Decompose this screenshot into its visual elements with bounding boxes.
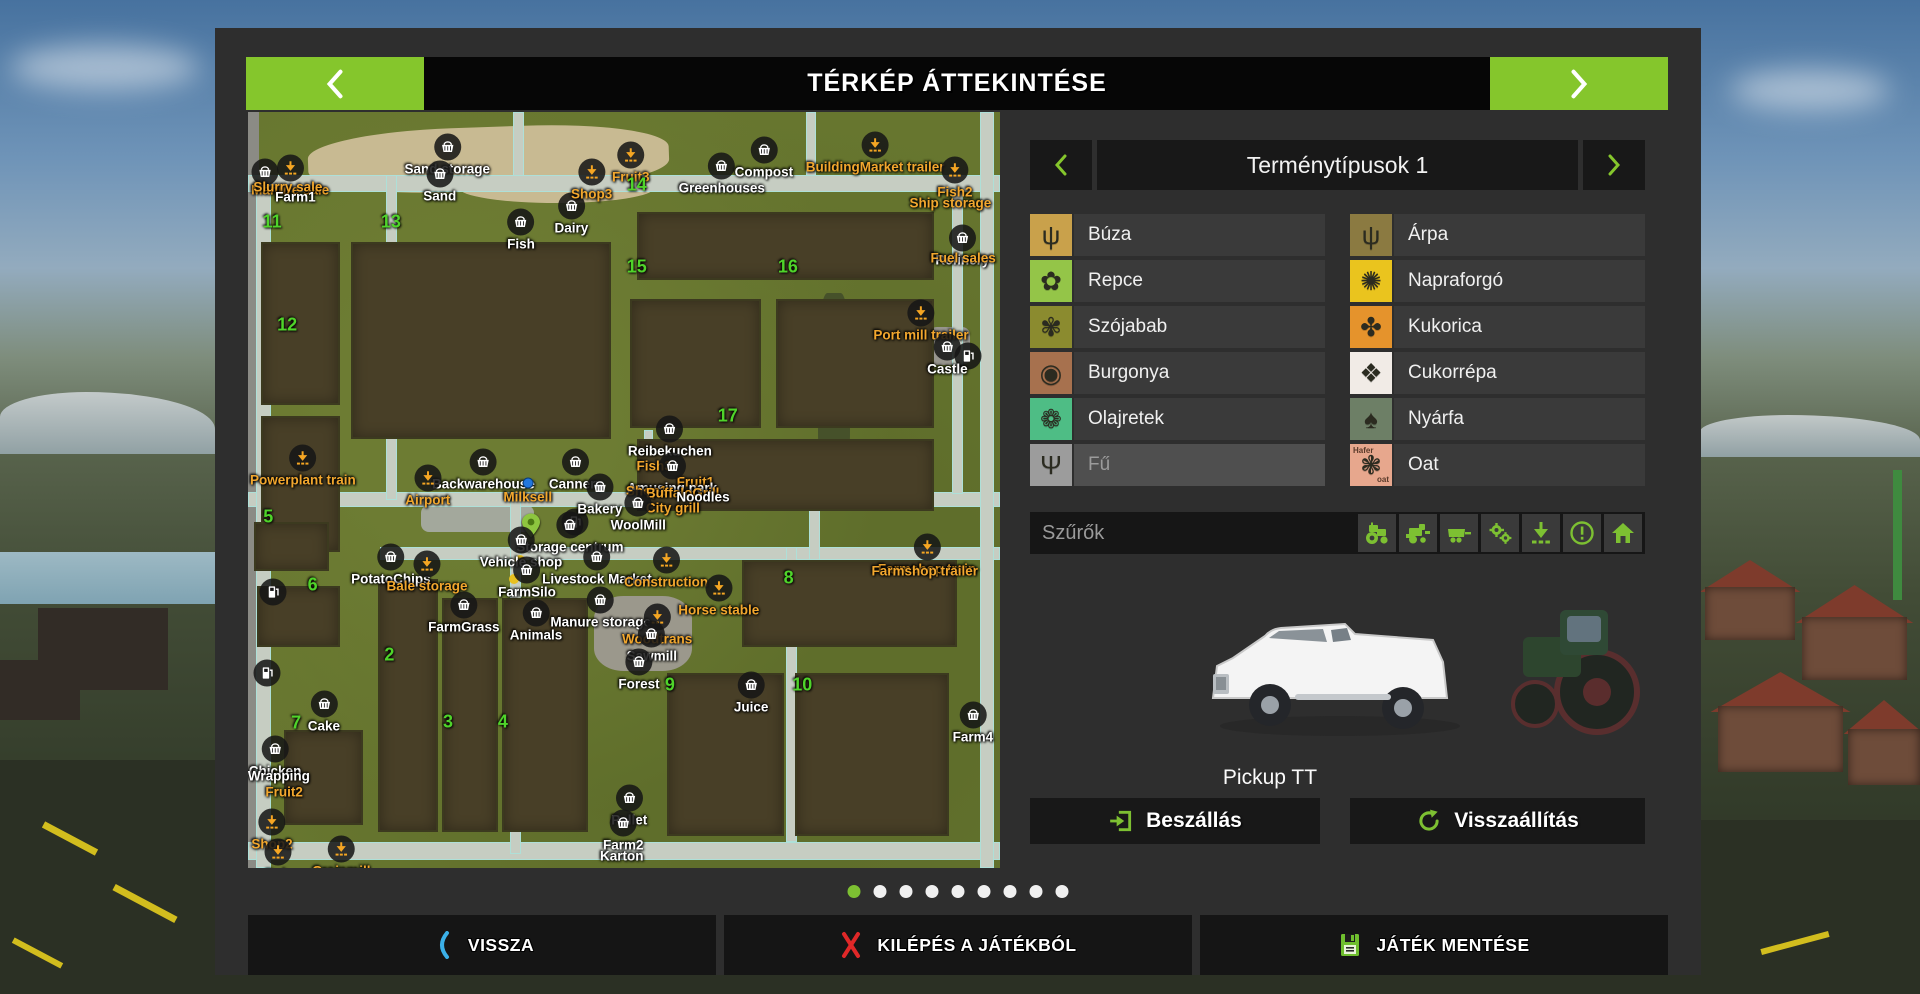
map-label-buildingmarket-trailer: BuildingMarket trailer <box>806 131 945 174</box>
trailer-filter-icon[interactable] <box>1440 514 1478 552</box>
chevron-right-icon <box>1607 154 1621 176</box>
basket-marker-icon <box>556 512 583 539</box>
map-road <box>952 188 963 494</box>
crops-next-button[interactable] <box>1583 140 1645 190</box>
map-label-text: Backwarehouse <box>432 477 535 492</box>
crop-row-búza[interactable]: ψBúza <box>1030 214 1325 256</box>
crop-row-szójabab[interactable]: ✾Szójabab <box>1030 306 1325 348</box>
map-road <box>806 112 817 176</box>
crop-label: Árpa <box>1408 224 1448 246</box>
save-floppy-icon <box>1338 931 1362 959</box>
basket-marker-icon <box>470 449 497 476</box>
download-marker-icon <box>862 131 889 158</box>
reset-vehicle-button[interactable]: Visszaállítás <box>1350 798 1645 844</box>
barley-icon: ψ <box>1350 214 1392 256</box>
warning-filter-icon[interactable] <box>1563 514 1601 552</box>
reset-icon <box>1416 808 1442 834</box>
map-road <box>513 112 524 176</box>
page-dots <box>848 885 1069 898</box>
map-field <box>632 301 760 426</box>
save-game-button[interactable]: JÁTÉK MENTÉSE <box>1200 915 1668 975</box>
crop-label: Búza <box>1088 224 1131 246</box>
crops-panel: Terménytípusok 1 ψBúza✿Repce✾Szójabab◉Bu… <box>1030 140 1645 880</box>
back-button[interactable]: VISSZA <box>248 915 716 975</box>
page-dot-3[interactable] <box>900 885 913 898</box>
back-chevron-icon <box>430 931 454 959</box>
page-dot-9[interactable] <box>1056 885 1069 898</box>
crop-row-kukorica[interactable]: ✤Kukorica <box>1350 306 1645 348</box>
crop-label-bar: Oat <box>1394 444 1645 486</box>
vehicle-name: Pickup TT <box>1030 766 1510 790</box>
enter-vehicle-button[interactable]: Beszállás <box>1030 798 1320 844</box>
house <box>1802 585 1907 680</box>
crop-label: Szójabab <box>1088 316 1167 338</box>
crop-label: Oat <box>1408 454 1439 476</box>
crop-label: Kukorica <box>1408 316 1482 338</box>
map-label-compost: Compost <box>735 137 794 180</box>
back-label: VISSZA <box>468 935 534 956</box>
map-road <box>980 112 994 868</box>
crop-label: Nyárfa <box>1408 408 1464 430</box>
house <box>1718 672 1843 772</box>
map-forest-area <box>594 596 692 672</box>
dot-blue-marker-icon <box>522 477 533 488</box>
map-label-farmsilo: FarmSilo <box>498 556 556 599</box>
map-field <box>669 675 782 834</box>
mountains <box>0 392 215 454</box>
filters-label: Szűrők <box>1030 522 1358 545</box>
page-title: TÉRKÉP ÁTTEKINTÉSE <box>807 69 1107 98</box>
unloading-filter-icon[interactable] <box>1522 514 1560 552</box>
chevron-left-icon <box>324 69 346 99</box>
map-label-text: Dairy <box>554 221 588 236</box>
harvester-filter-icon[interactable] <box>1399 514 1437 552</box>
map-field <box>380 581 436 830</box>
map-label-cake: Cake <box>308 691 340 734</box>
minimap[interactable]: Manure saleSlurry saleFarm1Sand storageS… <box>248 112 1000 868</box>
map-label-text: Forest <box>618 676 659 691</box>
crop-row-olajretek[interactable]: ❁Olajretek <box>1030 398 1325 440</box>
page-dot-8[interactable] <box>1030 885 1043 898</box>
map-label-text: Grainmill <box>312 864 371 868</box>
prev-screen-button[interactable] <box>246 57 424 110</box>
rapeseed-icon: ✿ <box>1030 260 1072 302</box>
cloud <box>1730 70 1890 110</box>
crop-label-bar: Nyárfa <box>1394 398 1645 440</box>
download-marker-icon <box>414 465 441 492</box>
crops-panel-header: Terménytípusok 1 <box>1030 140 1645 190</box>
crop-label: Olajretek <box>1088 408 1164 430</box>
oilseed-radish-icon: ❁ <box>1030 398 1072 440</box>
gears-filter-icon[interactable] <box>1481 514 1519 552</box>
map-road <box>380 547 1000 560</box>
soybean-icon: ✾ <box>1030 306 1072 348</box>
crop-row-burgonya[interactable]: ◉Burgonya <box>1030 352 1325 394</box>
crop-label-bar: Olajretek <box>1074 398 1325 440</box>
enter-icon <box>1108 808 1134 834</box>
road <box>215 975 1701 994</box>
reset-vehicle-label: Visszaállítás <box>1454 809 1579 833</box>
sugar-beet-icon: ❖ <box>1350 352 1392 394</box>
page-dot-7[interactable] <box>1004 885 1017 898</box>
map-field <box>353 244 609 437</box>
map-field <box>744 562 955 645</box>
crop-label-bar: Repce <box>1074 260 1325 302</box>
page-dot-2[interactable] <box>874 885 887 898</box>
tractor-image <box>1505 592 1640 742</box>
basket-marker-icon <box>616 785 643 812</box>
map-label-text: Construction <box>624 574 708 589</box>
field-number-7: 7 <box>291 712 301 733</box>
vehicle-preview: Pickup TT <box>1030 570 1645 798</box>
crop-label-bar: Burgonya <box>1074 352 1325 394</box>
map-field <box>639 214 932 278</box>
map-label-pallet: Pallet <box>611 785 647 828</box>
cloud <box>10 45 200 90</box>
basket-marker-icon <box>750 137 777 164</box>
crop-label: Repce <box>1088 270 1143 292</box>
fuel-marker-icon <box>562 508 589 535</box>
crop-label: Burgonya <box>1088 362 1169 384</box>
map-field <box>797 675 947 834</box>
crops-panel-title: Terménytípusok 1 <box>1097 140 1578 190</box>
basket-marker-icon <box>562 449 589 476</box>
map-overview-dialog: TÉRKÉP ÁTTEKINTÉSE Manure saleSlurry sal… <box>215 28 1701 975</box>
map-field <box>444 600 497 831</box>
crane <box>1893 470 1902 600</box>
crop-label: Fű <box>1088 454 1110 476</box>
grass-icon: Ψ <box>1030 444 1072 486</box>
quit-game-button[interactable]: KILÉPÉS A JÁTÉKBÓL <box>724 915 1192 975</box>
oat-icon: ❃Haferoat <box>1350 444 1392 486</box>
action-buttons: Beszállás Visszaállítás <box>1030 798 1645 844</box>
crop-label-bar: Árpa <box>1394 214 1645 256</box>
crop-row-oat[interactable]: ❃HaferoatOat <box>1350 444 1645 486</box>
chevron-right-icon <box>1568 69 1590 99</box>
map-field <box>778 301 932 426</box>
map-field <box>256 524 327 569</box>
lake <box>0 552 215 604</box>
crop-row-napraforgó[interactable]: ✺Napraforgó <box>1350 260 1645 302</box>
road <box>1700 820 1920 994</box>
crop-label: Napraforgó <box>1408 270 1503 292</box>
screenshot-stage: TÉRKÉP ÁTTEKINTÉSE Manure saleSlurry sal… <box>0 0 1920 994</box>
basket-marker-icon <box>610 809 637 836</box>
basket-marker-icon <box>310 691 337 718</box>
crop-label: Cukorrépa <box>1408 362 1497 384</box>
corn-icon: ✤ <box>1350 306 1392 348</box>
crop-row-nyárfa[interactable]: ♠Nyárfa <box>1350 398 1645 440</box>
map-label-cannery: Cannery <box>549 449 603 492</box>
map-field <box>286 732 361 823</box>
map-field <box>259 588 338 645</box>
map-label-text: Pallet <box>611 813 647 828</box>
map-castle-area <box>929 327 970 365</box>
crop-label-bar: Búza <box>1074 214 1325 256</box>
page-dot-5[interactable] <box>952 885 965 898</box>
next-screen-button[interactable] <box>1490 57 1668 110</box>
crop-row-cukorrépa[interactable]: ❖Cukorrépa <box>1350 352 1645 394</box>
crop-label-bar: Cukorrépa <box>1394 352 1645 394</box>
quit-game-label: KILÉPÉS A JÁTÉKBÓL <box>877 935 1076 956</box>
pickup-image <box>1195 578 1485 743</box>
quit-x-icon <box>839 931 863 959</box>
crops-prev-button[interactable] <box>1030 140 1092 190</box>
road <box>0 760 215 994</box>
map-label-text: Livestock Market <box>542 571 652 586</box>
crop-label-bar: Napraforgó <box>1394 260 1645 302</box>
sunflower-icon: ✺ <box>1350 260 1392 302</box>
map-label-text: WoolMill <box>611 518 666 533</box>
potato-icon: ◉ <box>1030 352 1072 394</box>
map-field <box>639 441 932 509</box>
page-dot-1[interactable] <box>848 885 861 898</box>
save-game-label: JÁTÉK MENTÉSE <box>1376 935 1529 956</box>
house <box>1848 700 1920 785</box>
crop-label-bar: Szójabab <box>1074 306 1325 348</box>
map-label-text: BuildingMarket trailer <box>806 159 945 174</box>
title-strip: TÉRKÉP ÁTTEKINTÉSE <box>424 57 1490 110</box>
poplar-icon: ♠ <box>1350 398 1392 440</box>
wheat-icon: ψ <box>1030 214 1072 256</box>
filters-bar: Szűrők <box>1030 512 1645 554</box>
download-marker-icon <box>705 574 732 601</box>
crop-label-bar: Fű <box>1074 444 1325 486</box>
map-label-farm1: Farm1 <box>275 190 316 205</box>
home-filter-icon[interactable] <box>1604 514 1642 552</box>
bottom-bar: VISSZA KILÉPÉS A JÁTÉKBÓL JÁTÉK MENTÉSE <box>215 915 1701 975</box>
enter-vehicle-label: Beszállás <box>1146 809 1242 833</box>
map-road <box>248 842 1000 860</box>
map-label-text: FarmSilo <box>498 584 556 599</box>
crop-row-repce[interactable]: ✿Repce <box>1030 260 1325 302</box>
crop-label-bar: Kukorica <box>1394 306 1645 348</box>
crop-row-fű[interactable]: ΨFű <box>1030 444 1325 486</box>
map-label-backwarehouse: Backwarehouse <box>432 449 535 492</box>
tractor-filter-icon[interactable] <box>1358 514 1396 552</box>
crop-row-árpa[interactable]: ψÁrpa <box>1350 214 1645 256</box>
house-silhouette <box>0 660 80 720</box>
map-label-text: Cannery <box>549 477 603 492</box>
map-road <box>248 175 1000 192</box>
map-field <box>504 600 587 831</box>
house <box>1705 560 1795 640</box>
title-bar: TÉRKÉP ÁTTEKINTÉSE <box>215 57 1701 110</box>
mountains <box>1700 415 1920 457</box>
basket-marker-icon <box>507 208 534 235</box>
page-dot-4[interactable] <box>926 885 939 898</box>
page-dot-6[interactable] <box>978 885 991 898</box>
chevron-left-icon <box>1054 154 1068 176</box>
map-label-text: Farm1 <box>275 190 316 205</box>
map-field <box>263 244 338 403</box>
